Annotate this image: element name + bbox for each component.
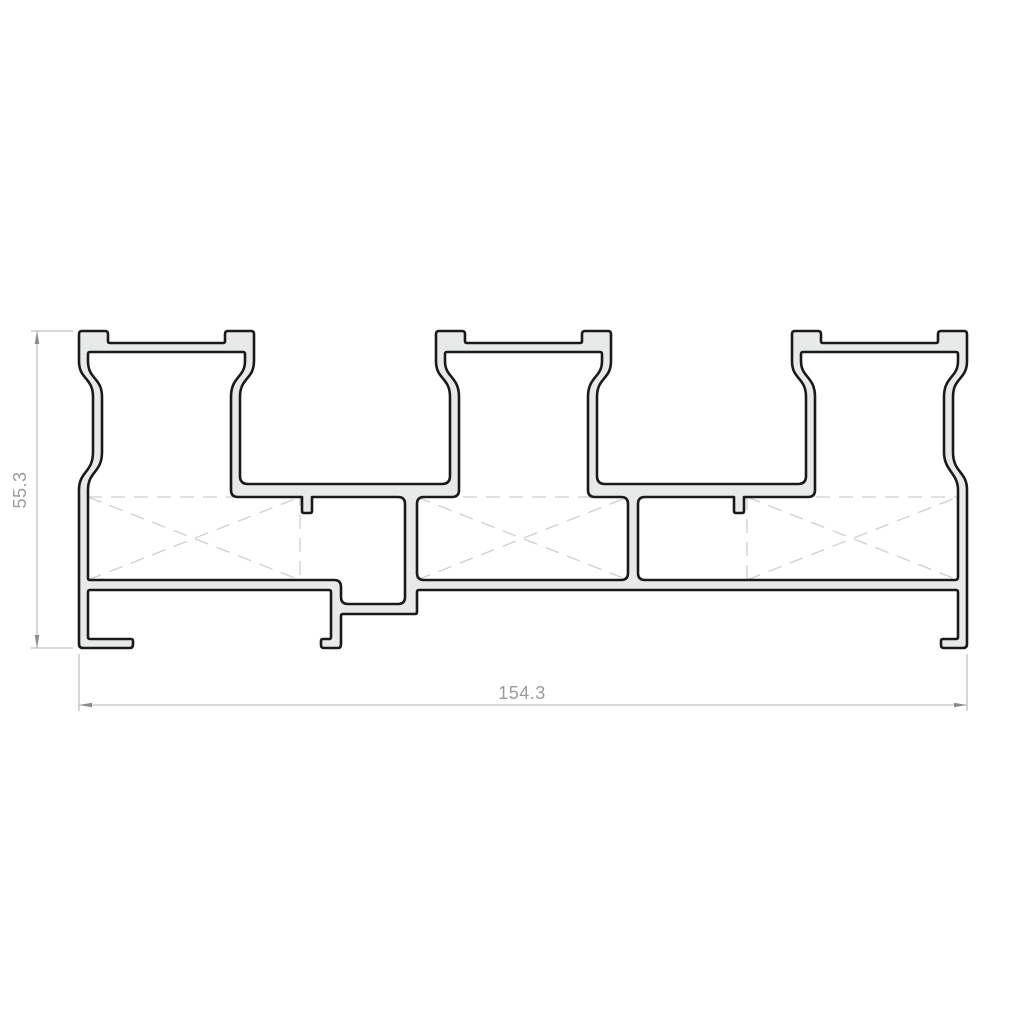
chamber-1-marker [88,497,300,580]
arrowhead-down-icon [35,635,40,648]
arrowhead-up-icon [35,331,40,344]
dimension-label-width: 154.3 [498,683,546,703]
vertical-dimension: 55.3 [10,331,73,648]
arrowhead-left-icon [79,703,92,708]
chamber-3-marker [747,497,958,580]
dimension-label-height: 55.3 [10,471,30,508]
chamber-2-marker [417,497,628,580]
drawing-canvas: 55.3 154.3 [0,0,1024,1024]
chamber-crosshatch [88,497,958,580]
profile-outline [79,331,967,648]
horizontal-dimension: 154.3 [79,654,967,711]
profile-technical-drawing: 55.3 154.3 [0,0,1024,1024]
arrowhead-right-icon [954,703,967,708]
